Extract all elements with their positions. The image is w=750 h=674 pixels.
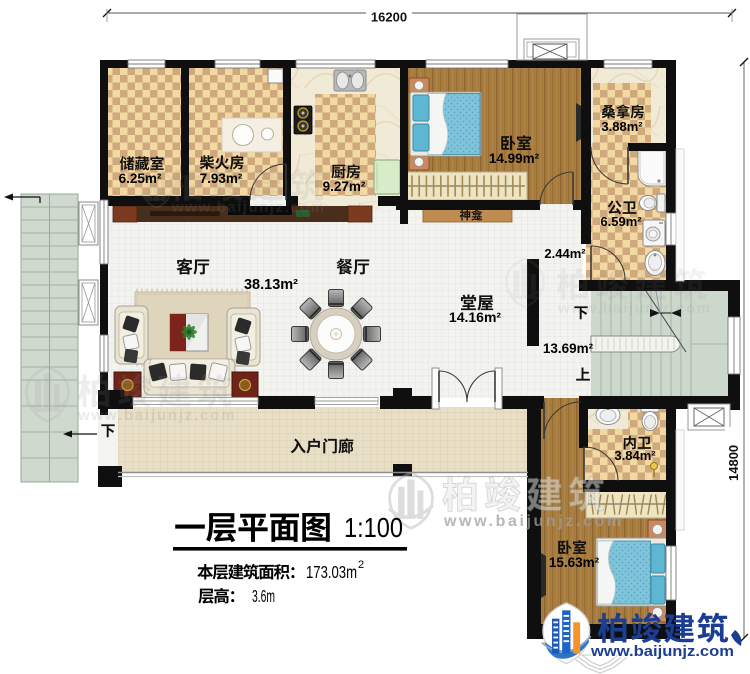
svg-text:13.69m²: 13.69m² (543, 341, 594, 356)
svg-text:9.27m²: 9.27m² (323, 179, 366, 194)
svg-text:6.59m²: 6.59m² (600, 214, 642, 229)
svg-text:3.84m²: 3.84m² (614, 448, 656, 463)
svg-text:14.16m²: 14.16m² (449, 309, 501, 325)
svg-text:7.93m²: 7.93m² (200, 171, 243, 186)
svg-text:6.25m²: 6.25m² (119, 171, 162, 186)
svg-text:2.44m²: 2.44m² (544, 246, 586, 261)
svg-text:3.88m²: 3.88m² (601, 119, 643, 134)
svg-text:2: 2 (358, 559, 364, 571)
svg-text:15.63m²: 15.63m² (549, 555, 600, 570)
svg-text:www.baijunjz.com: www.baijunjz.com (590, 643, 734, 660)
svg-text:www.baijunjz.com: www.baijunjz.com (77, 407, 236, 424)
svg-text:1:100: 1:100 (344, 512, 403, 543)
svg-text:14.99m²: 14.99m² (489, 151, 540, 166)
svg-text:14800: 14800 (726, 445, 741, 481)
svg-text:3.6m: 3.6m (252, 586, 275, 606)
svg-text:173.03m: 173.03m (306, 562, 357, 582)
svg-text:www.baijunjz.com: www.baijunjz.com (443, 513, 624, 530)
svg-text:www.baijunjz.com: www.baijunjz.com (171, 199, 325, 216)
svg-text:16200: 16200 (371, 10, 407, 25)
svg-text:38.13m²: 38.13m² (244, 277, 298, 293)
